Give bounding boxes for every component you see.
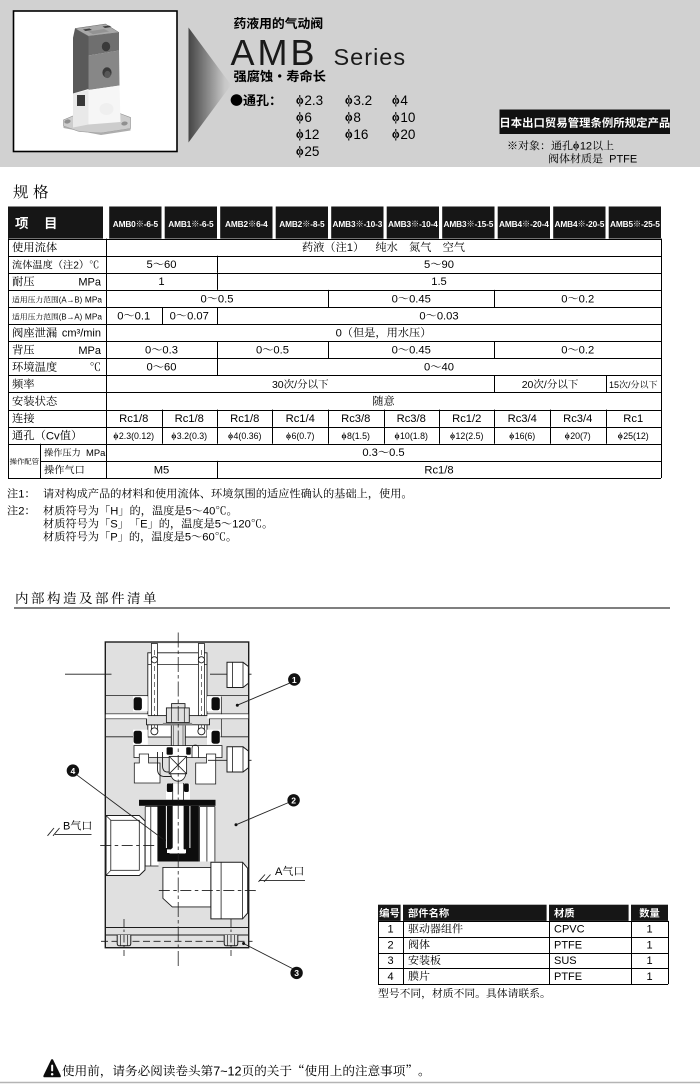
svg-text:-6-5: -6-5 [199, 219, 214, 229]
svg-text:1: 1 [646, 955, 652, 967]
svg-text:AMB0: AMB0 [113, 219, 136, 229]
svg-text:Cv: Cv [46, 430, 60, 442]
svg-text:-10-4: -10-4 [419, 219, 438, 229]
svg-text:Rc3/8: Rc3/8 [341, 413, 370, 425]
svg-text:0: 0 [147, 362, 153, 374]
svg-text:MPa: MPa [78, 276, 102, 288]
svg-text:0.5: 0.5 [218, 293, 234, 305]
svg-text:Rc3/4: Rc3/4 [508, 413, 537, 425]
svg-text:16(6): 16(6) [515, 431, 536, 441]
svg-text:0: 0 [392, 293, 398, 305]
svg-text:8(1.5): 8(1.5) [347, 431, 370, 441]
svg-text:2.3: 2.3 [304, 93, 323, 108]
svg-text:0: 0 [419, 310, 425, 322]
svg-text:/: / [294, 379, 297, 391]
svg-text:12(2.5): 12(2.5) [456, 431, 484, 441]
svg-text:0.03: 0.03 [437, 310, 459, 322]
svg-text:0.2: 0.2 [579, 293, 595, 305]
svg-text:8: 8 [353, 110, 361, 125]
svg-text:6-4: 6-4 [256, 219, 268, 229]
svg-text:AMB2: AMB2 [279, 219, 302, 229]
svg-text:40: 40 [441, 362, 453, 374]
svg-text:2: 2 [291, 796, 296, 806]
svg-text:Rc1/8: Rc1/8 [424, 464, 453, 476]
svg-text:1: 1 [292, 675, 297, 685]
svg-text:2: 2 [18, 506, 24, 518]
svg-text:Rc1/8: Rc1/8 [175, 413, 204, 425]
svg-text:PTFE: PTFE [554, 939, 582, 951]
svg-text:12: 12 [304, 127, 319, 142]
svg-text:-25-5: -25-5 [641, 219, 660, 229]
svg-text:PTFE: PTFE [554, 971, 582, 983]
svg-text:Rc1: Rc1 [623, 413, 643, 425]
svg-text:1: 1 [158, 276, 164, 288]
svg-text:Rc3/8: Rc3/8 [397, 413, 426, 425]
svg-text:1: 1 [18, 489, 24, 501]
svg-text:0: 0 [170, 310, 176, 322]
svg-text:25: 25 [304, 144, 319, 159]
svg-text:0.5: 0.5 [389, 447, 405, 459]
svg-text:15: 15 [609, 380, 619, 390]
svg-text:20: 20 [522, 379, 534, 391]
svg-text:(B→A): (B→A) [59, 313, 83, 322]
svg-text:7~12: 7~12 [213, 1064, 241, 1078]
svg-text:cm³/min: cm³/min [62, 328, 101, 340]
svg-text:Rc3/4: Rc3/4 [563, 413, 592, 425]
svg-text:3.2(0.3): 3.2(0.3) [177, 431, 207, 441]
svg-text:A: A [275, 866, 283, 878]
svg-text:/: / [544, 379, 547, 391]
svg-text:2.3(0.12): 2.3(0.12) [119, 431, 154, 441]
svg-text:0: 0 [561, 345, 567, 357]
svg-text:PTFE: PTFE [603, 154, 637, 166]
svg-text:AMB4: AMB4 [555, 219, 578, 229]
svg-text:16: 16 [353, 127, 368, 142]
svg-text:Rc1/2: Rc1/2 [452, 413, 481, 425]
svg-text:5: 5 [424, 259, 430, 271]
svg-text:0: 0 [336, 328, 342, 340]
svg-text:P: P [110, 532, 117, 544]
svg-text:1: 1 [646, 924, 652, 936]
svg-text:MPa: MPa [85, 295, 102, 305]
svg-text:AMB3: AMB3 [333, 219, 356, 229]
svg-text:90: 90 [441, 259, 453, 271]
svg-text:AMB3: AMB3 [444, 219, 467, 229]
svg-text:1.5: 1.5 [431, 276, 447, 288]
svg-text:6(0.7): 6(0.7) [291, 431, 314, 441]
svg-text:10: 10 [400, 110, 415, 125]
svg-text:0.5: 0.5 [273, 345, 289, 357]
svg-text:AMB1: AMB1 [168, 219, 191, 229]
svg-text:-15-5: -15-5 [475, 219, 494, 229]
svg-text:-8-5: -8-5 [310, 219, 325, 229]
svg-text:Rc1/4: Rc1/4 [286, 413, 315, 425]
svg-text:SUS: SUS [554, 955, 577, 967]
svg-text:5: 5 [185, 506, 191, 518]
svg-text:Series: Series [334, 44, 407, 70]
svg-text:-20-4: -20-4 [530, 219, 549, 229]
svg-text:20: 20 [400, 127, 415, 142]
svg-text:4(0.36): 4(0.36) [234, 431, 262, 441]
svg-text:0: 0 [561, 293, 567, 305]
svg-text:5: 5 [215, 519, 221, 531]
svg-text:MPa: MPa [81, 447, 106, 458]
svg-text:4: 4 [387, 971, 393, 983]
svg-text:B: B [63, 821, 70, 833]
svg-text:S: S [110, 519, 117, 531]
svg-text:4: 4 [71, 766, 76, 776]
svg-text:AMB3: AMB3 [388, 219, 411, 229]
svg-text:3: 3 [387, 955, 393, 967]
svg-text:40: 40 [203, 506, 215, 518]
svg-text:5: 5 [185, 532, 191, 544]
svg-text:1: 1 [646, 939, 652, 951]
svg-text:MPa: MPa [78, 345, 102, 357]
svg-text:0.3: 0.3 [362, 447, 378, 459]
svg-text:AMB: AMB [231, 32, 318, 73]
svg-text:1: 1 [347, 242, 353, 254]
svg-text:-20-5: -20-5 [586, 219, 605, 229]
svg-text:2: 2 [73, 260, 79, 271]
svg-text:0.1: 0.1 [135, 310, 151, 322]
svg-text:2: 2 [387, 939, 393, 951]
svg-text:CPVC: CPVC [554, 924, 585, 936]
svg-text:0.45: 0.45 [409, 345, 431, 357]
svg-text:60: 60 [164, 259, 176, 271]
svg-text:60: 60 [164, 362, 176, 374]
svg-text:3: 3 [294, 968, 299, 978]
svg-text:0: 0 [256, 345, 262, 357]
svg-text:30: 30 [272, 379, 284, 391]
svg-text:60: 60 [202, 532, 214, 544]
svg-text:0.2: 0.2 [579, 345, 595, 357]
svg-text:AMB5: AMB5 [610, 219, 633, 229]
svg-text:1: 1 [387, 924, 393, 936]
svg-text:0: 0 [117, 310, 123, 322]
svg-text:MPa: MPa [85, 312, 102, 322]
svg-text:120: 120 [232, 519, 251, 531]
svg-text:6: 6 [304, 110, 312, 125]
svg-text:5: 5 [147, 259, 153, 271]
svg-text:Rc1/8: Rc1/8 [119, 413, 148, 425]
svg-text:M5: M5 [154, 464, 170, 476]
svg-text:0: 0 [201, 293, 207, 305]
svg-text:E: E [140, 519, 147, 531]
svg-text:10(1.8): 10(1.8) [400, 431, 428, 441]
svg-text:0: 0 [145, 345, 151, 357]
svg-text:0: 0 [392, 345, 398, 357]
svg-text:0.3: 0.3 [162, 345, 178, 357]
svg-text:-6-5: -6-5 [144, 219, 159, 229]
svg-text:AMB4: AMB4 [499, 219, 522, 229]
svg-text:25(12): 25(12) [623, 431, 648, 441]
svg-text:AMB2: AMB2 [225, 219, 248, 229]
svg-text:H: H [110, 506, 118, 518]
svg-text:4: 4 [400, 93, 408, 108]
svg-text:0.07: 0.07 [187, 310, 209, 322]
svg-text:Rc1/8: Rc1/8 [230, 413, 259, 425]
svg-text:12: 12 [580, 141, 592, 153]
svg-text:20(7): 20(7) [570, 431, 591, 441]
svg-text:0.45: 0.45 [409, 293, 431, 305]
svg-text:3.2: 3.2 [353, 93, 372, 108]
svg-text:1: 1 [646, 971, 652, 983]
svg-text:-10-3: -10-3 [364, 219, 383, 229]
svg-text:0: 0 [424, 362, 430, 374]
svg-text:(A→B): (A→B) [59, 296, 83, 305]
